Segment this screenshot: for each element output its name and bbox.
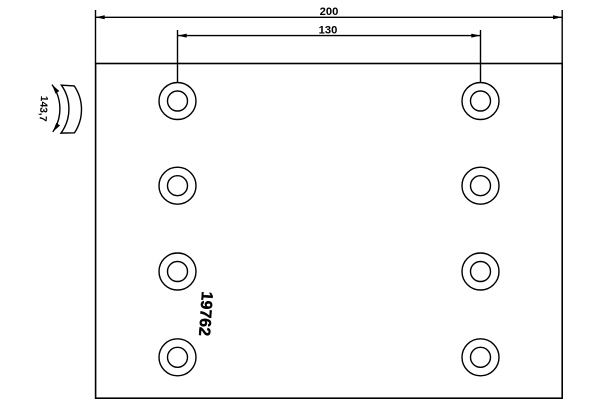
svg-text:130: 130 <box>319 25 338 37</box>
svg-text:143,7: 143,7 <box>37 95 49 122</box>
svg-text:200: 200 <box>320 6 339 18</box>
svg-text:19762: 19762 <box>195 291 215 337</box>
